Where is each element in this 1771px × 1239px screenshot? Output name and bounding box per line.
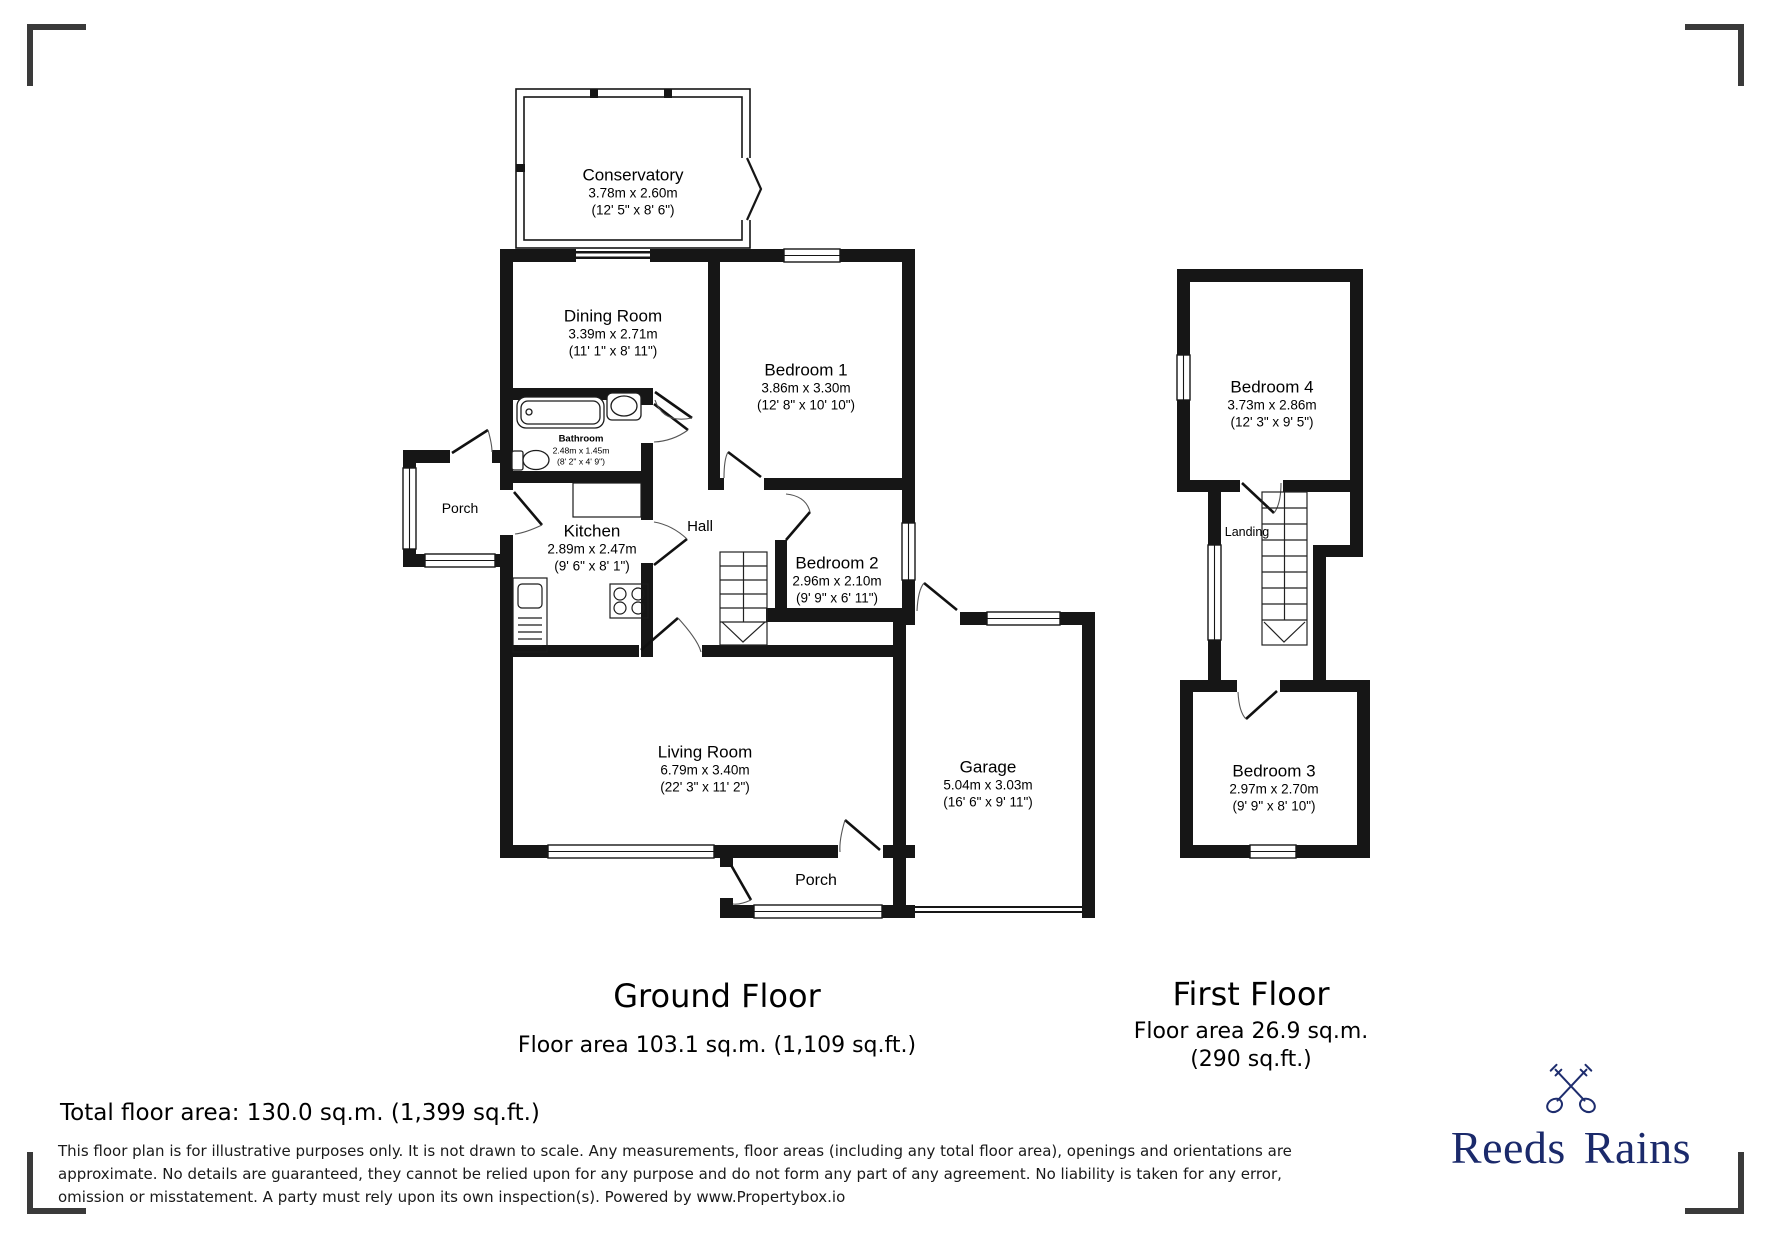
room-dims-metric: 2.48m x 1.45m (553, 446, 610, 457)
room-name: Bedroom 2 (792, 554, 881, 574)
room-name: Porch (442, 498, 479, 518)
disclaimer-text: This floor plan is for illustrative purp… (58, 1140, 1353, 1209)
ground-floor-area-line: Floor area 103.1 sq.m. (1,109 sq.ft.) (518, 1032, 916, 1060)
room-dims-metric: 3.73m x 2.86m (1227, 398, 1316, 415)
room-dims-imperial: (9' 9" x 6' 11") (792, 590, 881, 607)
kitchen-sink-icon (513, 578, 547, 652)
room-dims-imperial: (22' 3" x 11' 2") (658, 779, 753, 796)
room-label-bedroom3: Bedroom 3 2.97m x 2.70m (9' 9" x 8' 10") (1229, 762, 1318, 815)
room-label-bedroom4: Bedroom 4 3.73m x 2.86m (12' 3" x 9' 5") (1227, 378, 1316, 431)
room-dims-metric: 5.04m x 3.03m (943, 778, 1033, 795)
room-dims-metric: 3.86m x 3.30m (757, 381, 855, 398)
stairs-first-icon (1262, 492, 1307, 645)
room-label-landing: Landing (1225, 522, 1270, 542)
room-label-living: Living Room 6.79m x 3.40m (22' 3" x 11' … (658, 743, 753, 796)
ground-floor-title: Ground Floor (613, 976, 820, 1016)
room-label-bathroom: Bathroom 2.48m x 1.45m (8' 2" x 4' 9") (553, 434, 610, 467)
total-floor-area: Total floor area: 130.0 sq.m. (1,399 sq.… (60, 1100, 540, 1126)
room-label-dining: Dining Room 3.39m x 2.71m (11' 1" x 8' 1… (564, 307, 662, 360)
stairs-ground-icon (720, 552, 767, 645)
room-label-kitchen: Kitchen 2.89m x 2.47m (9' 6" x 8' 1") (547, 522, 636, 575)
first-floor-title: First Floor (1172, 974, 1329, 1014)
room-name: Garage (943, 758, 1033, 778)
room-name: Bedroom 4 (1227, 378, 1316, 398)
first-floor-area-line2: (290 sq.ft.) (1190, 1046, 1312, 1074)
bathroom-sink-icon (607, 393, 641, 420)
room-dims-metric: 3.78m x 2.60m (582, 186, 683, 203)
room-name: Conservatory (582, 166, 683, 186)
room-dims-metric: 2.96m x 2.10m (792, 574, 881, 591)
room-label-bedroom1: Bedroom 1 3.86m x 3.30m (12' 8" x 10' 10… (757, 361, 855, 414)
room-dims-imperial: (12' 8" x 10' 10") (757, 397, 855, 414)
bath-icon (517, 397, 604, 428)
brand-name: Reeds Rains (1437, 1123, 1705, 1173)
room-name: Bedroom 3 (1229, 762, 1318, 782)
room-dims-imperial: (12' 5" x 8' 6") (582, 202, 683, 219)
room-dims-imperial: (12' 3" x 9' 5") (1227, 414, 1316, 431)
room-dims-imperial: (8' 2" x 4' 9") (553, 456, 610, 467)
brand-logo: Reeds Rains (1437, 1060, 1705, 1173)
room-dims-imperial: (11' 1" x 8' 11") (564, 343, 662, 360)
room-name: Porch (795, 871, 837, 891)
room-dims-metric: 6.79m x 3.40m (658, 763, 753, 780)
room-label-bedroom2: Bedroom 2 2.96m x 2.10m (9' 9" x 6' 11") (792, 554, 881, 607)
room-label-porch-side: Porch (442, 498, 479, 518)
room-dims-metric: 2.89m x 2.47m (547, 542, 636, 559)
room-label-porch-front: Porch (795, 871, 837, 891)
room-dims-imperial: (9' 9" x 8' 10") (1229, 798, 1318, 815)
room-dims-metric: 2.97m x 2.70m (1229, 782, 1318, 799)
room-dims-metric: 3.39m x 2.71m (564, 327, 662, 344)
room-name: Bathroom (553, 434, 610, 446)
room-name: Bedroom 1 (757, 361, 855, 381)
room-dims-imperial: (16' 6" x 9' 11") (943, 794, 1033, 811)
kitchen-counter (573, 483, 641, 517)
first-floor-area-line1: Floor area 26.9 sq.m. (1134, 1018, 1369, 1046)
crossed-keys-icon (1542, 1060, 1600, 1116)
room-name: Kitchen (547, 522, 636, 542)
room-label-garage: Garage 5.04m x 3.03m (16' 6" x 9' 11") (943, 758, 1033, 811)
room-label-hall: Hall (687, 517, 713, 537)
room-name: Dining Room (564, 307, 662, 327)
toilet-icon (512, 451, 549, 471)
room-name: Living Room (658, 743, 753, 763)
floorplan-canvas: Conservatory 3.78m x 2.60m (12' 5" x 8' … (0, 0, 1771, 1239)
room-name: Landing (1225, 522, 1270, 542)
ground-floor-walls (403, 249, 1095, 918)
room-dims-imperial: (9' 6" x 8' 1") (547, 558, 636, 575)
room-label-conservatory: Conservatory 3.78m x 2.60m (12' 5" x 8' … (582, 166, 683, 219)
room-name: Hall (687, 517, 713, 537)
